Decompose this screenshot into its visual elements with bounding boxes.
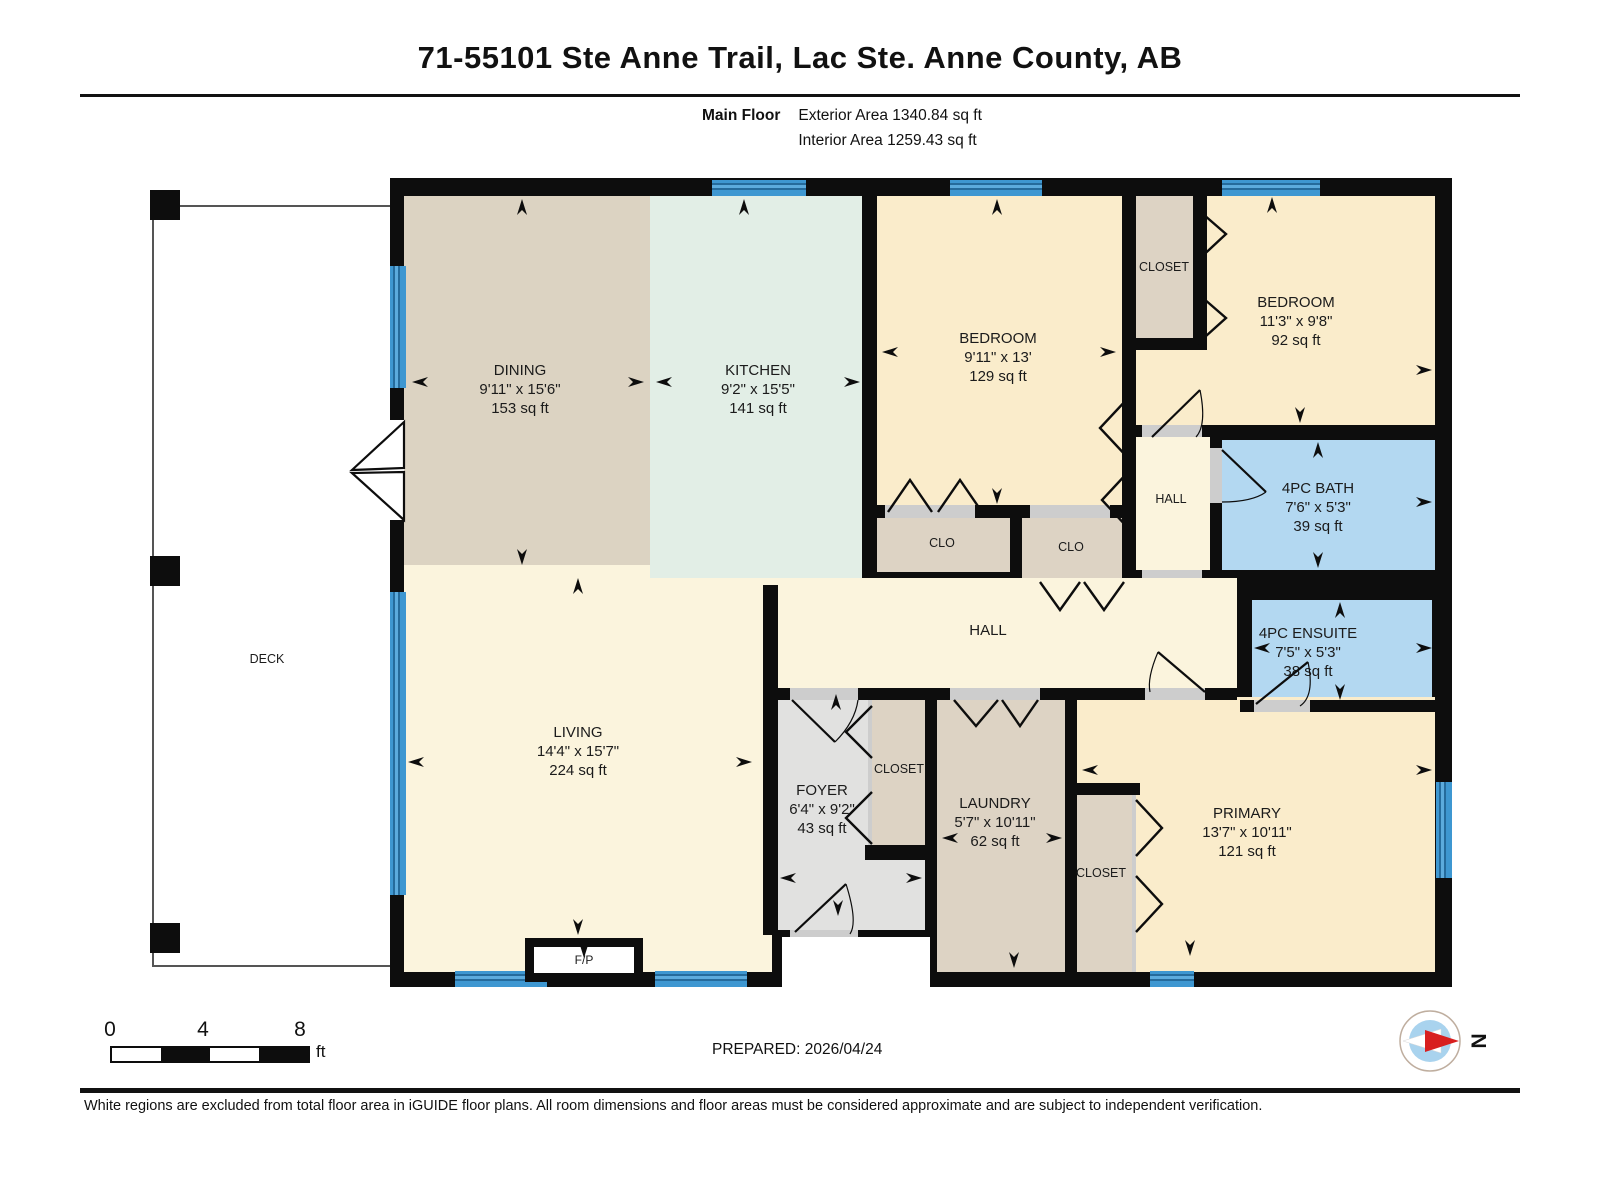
- fireplace: F/P: [525, 938, 643, 982]
- room-label-laundry: LAUNDRY5'7" x 10'11"62 sq ft: [954, 795, 1035, 851]
- entry-notch: [782, 937, 930, 987]
- room-closet-primary: [1077, 795, 1132, 972]
- compass-north-label: N: [1466, 1033, 1489, 1048]
- room-label-hall-small: HALL: [1155, 492, 1186, 508]
- room-label-closet-primary: CLOSET: [1076, 866, 1126, 882]
- deck-post: [150, 190, 180, 220]
- window: [655, 971, 747, 987]
- door-threshold: [950, 688, 1040, 700]
- room-label-closet-foyer: CLOSET: [874, 762, 924, 778]
- fireplace-label: F/P: [575, 953, 594, 967]
- door-threshold: [790, 930, 858, 937]
- room-label-foyer: FOYER6'4" x 9'2"43 sq ft: [789, 782, 855, 838]
- room-bedroom2-entry: [1136, 350, 1207, 425]
- window: [1436, 782, 1452, 878]
- deck-post: [150, 556, 180, 586]
- window: [950, 180, 1042, 196]
- room-label-primary: PRIMARY13'7" x 10'11"121 sq ft: [1202, 805, 1292, 861]
- scale-tick-4: 4: [197, 1018, 209, 1042]
- door-threshold: [868, 700, 872, 845]
- floor-summary: Main Floor Exterior Area 1340.84 sq ft I…: [702, 107, 982, 157]
- door-threshold: [1030, 505, 1110, 518]
- door-threshold: [1142, 425, 1202, 437]
- door-threshold: [1210, 448, 1222, 503]
- patio-opening: [390, 420, 404, 520]
- scale-tick-0: 0: [104, 1018, 116, 1042]
- prepared-date: PREPARED: 2026/04/24: [712, 1041, 882, 1059]
- room-label-clo-left: CLO: [929, 536, 955, 552]
- room-label-clo-right: CLO: [1058, 540, 1084, 556]
- exterior-area: Exterior Area 1340.84 sq ft: [798, 107, 982, 125]
- floor-plan-page: 71-55101 Ste Anne Trail, Lac Ste. Anne C…: [0, 0, 1600, 1200]
- room-label-bedroom1: BEDROOM9'11" x 13'129 sq ft: [959, 330, 1037, 386]
- door-threshold: [1145, 688, 1205, 700]
- footer-rule: [80, 1088, 1520, 1093]
- page-title: 71-55101 Ste Anne Trail, Lac Ste. Anne C…: [0, 40, 1600, 76]
- window: [390, 592, 406, 895]
- door-threshold: [1254, 700, 1310, 712]
- scale-bar: [110, 1046, 310, 1063]
- deck-outline: [152, 205, 397, 967]
- room-label-hall-main: HALL: [969, 622, 1007, 641]
- room-label-closet-top: CLOSET: [1139, 260, 1189, 276]
- room-label-bath: 4PC BATH7'6" x 5'3"39 sq ft: [1282, 480, 1354, 536]
- door-threshold: [1132, 795, 1136, 972]
- room-living-patch: [404, 565, 650, 578]
- window: [1150, 971, 1194, 987]
- interior-area: Interior Area 1259.43 sq ft: [798, 132, 982, 150]
- wall: [763, 585, 778, 935]
- wall: [1077, 783, 1140, 795]
- door-threshold: [885, 505, 975, 518]
- room-label-deck: DECK: [250, 652, 285, 668]
- room-label-living: LIVING14'4" x 15'7"224 sq ft: [537, 724, 619, 780]
- door-threshold: [790, 688, 858, 700]
- header-rule: [80, 94, 1520, 97]
- room-label-kitchen: KITCHEN9'2" x 15'5"141 sq ft: [721, 362, 795, 418]
- compass-icon: N: [1400, 1011, 1489, 1071]
- window: [1222, 180, 1320, 196]
- floor-label: Main Floor: [702, 107, 780, 157]
- disclaimer-text: White regions are excluded from total fl…: [84, 1098, 1262, 1114]
- room-label-bedroom2: BEDROOM11'3" x 9'8"92 sq ft: [1257, 294, 1335, 350]
- window: [390, 266, 406, 388]
- deck-post: [150, 923, 180, 953]
- scale-unit: ft: [316, 1042, 325, 1062]
- scale-tick-8: 8: [294, 1018, 306, 1042]
- room-label-dining: DINING9'11" x 15'6"153 sq ft: [479, 362, 560, 418]
- wall: [865, 845, 925, 860]
- door-threshold: [1142, 570, 1202, 578]
- room-label-ensuite: 4PC ENSUITE7'5" x 5'3"38 sq ft: [1259, 625, 1357, 681]
- window: [712, 180, 806, 196]
